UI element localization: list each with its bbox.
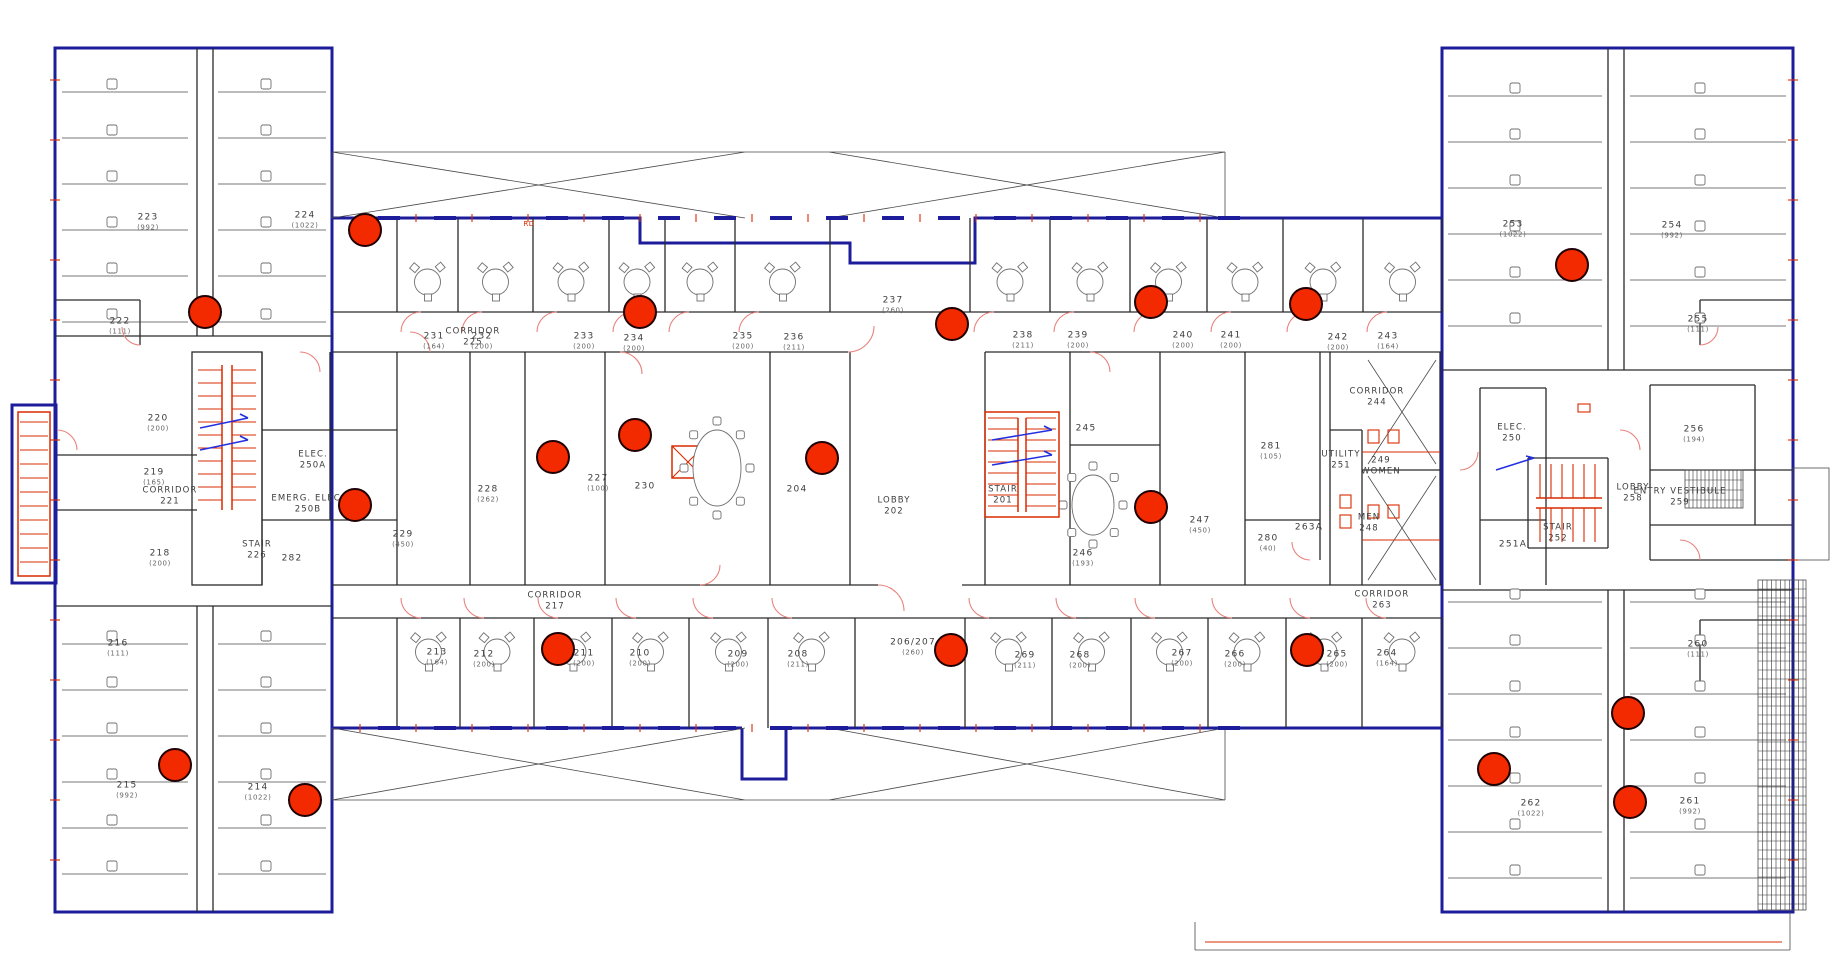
space-number: 248 <box>1358 524 1380 535</box>
room-area: (200) <box>732 342 754 350</box>
room-number: 234 <box>623 333 645 344</box>
room-number: 247 <box>1189 515 1211 526</box>
north-strip-wall <box>332 218 1442 263</box>
room-area: (1022) <box>1518 809 1545 817</box>
space-name: STAIR <box>242 540 272 551</box>
space-number: 250B <box>271 505 344 516</box>
space-number: 221 <box>143 497 198 508</box>
room-label-214: 214(1022) <box>245 782 272 801</box>
room-number: 280 <box>1258 533 1279 544</box>
room-label-241: 241(200) <box>1220 330 1242 349</box>
room-number: 266 <box>1224 649 1246 660</box>
space-label-252: STAIR252 <box>1543 523 1573 546</box>
room-number: 216 <box>107 638 129 649</box>
wing-aisle-walls <box>197 48 1624 912</box>
room-area: (1022) <box>292 221 319 229</box>
room-label-219: 219(165) <box>143 467 165 486</box>
room-number: 219 <box>143 467 165 478</box>
room-number: 243 <box>1377 331 1399 342</box>
room-number: 214 <box>245 782 272 793</box>
room-number: 254 <box>1661 220 1683 231</box>
room-area: (992) <box>137 223 159 231</box>
room-label-220: 220(200) <box>147 413 169 432</box>
canopy-outline <box>1195 912 1790 950</box>
marker-dot[interactable] <box>536 440 570 474</box>
room-label-269: 269(211) <box>1014 650 1036 669</box>
room-number: 239 <box>1067 330 1089 341</box>
space-label-250a: ELEC.250A <box>298 450 328 473</box>
room-number: 264 <box>1376 648 1398 659</box>
room-label-240: 240(200) <box>1172 330 1194 349</box>
room-number: 204 <box>787 485 808 496</box>
space-number: 252 <box>1543 534 1573 545</box>
marker-dot[interactable] <box>1613 785 1647 819</box>
space-number: 226 <box>242 551 272 562</box>
room-number: 246 <box>1072 548 1094 559</box>
room-label-210: 210(200) <box>629 648 651 667</box>
room-label-266: 266(200) <box>1224 649 1246 668</box>
room-area: (200) <box>1067 341 1089 349</box>
room-label-209: 209(200) <box>727 649 749 668</box>
room-area: (193) <box>1072 559 1094 567</box>
room-number: 241 <box>1220 330 1242 341</box>
room-label-236: 236(211) <box>783 332 805 351</box>
marker-dot[interactable] <box>1555 248 1589 282</box>
marker-dot[interactable] <box>188 295 222 329</box>
marker-dot[interactable] <box>1134 490 1168 524</box>
room-label-245: 245 <box>1076 424 1097 435</box>
room-label-242: 242(200) <box>1327 332 1349 351</box>
marker-dot[interactable] <box>623 295 657 329</box>
room-label-253: 253(1022) <box>1500 219 1527 238</box>
marker-dot[interactable] <box>1134 285 1168 319</box>
space-label-201: STAIR201 <box>988 485 1018 508</box>
room-number: 256 <box>1683 424 1705 435</box>
room-area: (200) <box>149 559 171 567</box>
room-area: (211) <box>783 343 805 351</box>
room-label-238: 238(211) <box>1012 330 1034 349</box>
room-number: 255 <box>1687 314 1709 325</box>
room-label-254: 254(992) <box>1661 220 1683 239</box>
room-number: 206/207 <box>890 637 936 648</box>
room-area: (450) <box>1189 526 1211 534</box>
room-area: (200) <box>573 342 595 350</box>
room-area: (200) <box>473 660 495 668</box>
room-area: (1022) <box>245 793 272 801</box>
room-label-218: 218(200) <box>149 548 171 567</box>
space-label-244: CORRIDOR244 <box>1350 387 1405 410</box>
room-number: 265 <box>1326 649 1348 660</box>
room-area: (200) <box>1172 341 1194 349</box>
room-number: 231 <box>423 331 445 342</box>
room-area: (111) <box>109 327 131 335</box>
marker-dot[interactable] <box>618 418 652 452</box>
room-label-251A: 251A <box>1499 540 1527 551</box>
room-number: 215 <box>116 780 138 791</box>
space-label-250: ELEC.250 <box>1497 423 1527 446</box>
marker-dot[interactable] <box>1290 633 1324 667</box>
space-number: 202 <box>877 507 910 518</box>
room-area: (992) <box>1661 231 1683 239</box>
room-label-224: 224(1022) <box>292 210 319 229</box>
room-area: (200) <box>573 659 595 667</box>
room-number: 263A <box>1295 523 1323 534</box>
room-label-263A: 263A <box>1295 523 1323 534</box>
room-area: (200) <box>727 660 749 668</box>
space-number: 250A <box>298 461 328 472</box>
room-label-247: 247(450) <box>1189 515 1211 534</box>
room-number: 210 <box>629 648 651 659</box>
room-area: (260) <box>890 648 936 656</box>
space-name: CORRIDOR <box>528 591 583 602</box>
room-label-208: 208(211) <box>787 649 809 668</box>
room-area: (200) <box>629 659 651 667</box>
floorplan-drawing <box>0 0 1832 961</box>
room-area: (200) <box>1069 661 1091 669</box>
space-name: CORRIDOR <box>1350 387 1405 398</box>
room-area: (164) <box>423 342 445 350</box>
space-name: ENTRY VESTIBULE <box>1633 487 1726 498</box>
room-area: (164) <box>426 658 448 666</box>
space-name: ELEC. <box>298 450 328 461</box>
room-area: (111) <box>1687 650 1709 658</box>
room-area: (105) <box>1260 452 1282 460</box>
room-label-204: 204 <box>787 485 808 496</box>
space-name: ELEC. <box>1497 423 1527 434</box>
marker-dot[interactable] <box>935 307 969 341</box>
space-name: STAIR <box>1543 523 1573 534</box>
marker-dot[interactable] <box>541 632 575 666</box>
room-number: 238 <box>1012 330 1034 341</box>
marker-dot[interactable] <box>934 633 968 667</box>
room-number: 242 <box>1327 332 1349 343</box>
room-label-255: 255(111) <box>1687 314 1709 333</box>
space-label-women: 249WOMEN <box>1361 456 1401 479</box>
room-number: 281 <box>1260 441 1282 452</box>
marker-dot[interactable] <box>1477 752 1511 786</box>
room-label-243: 243(164) <box>1377 331 1399 350</box>
room-label-282: 282 <box>282 554 303 565</box>
room-area: (450) <box>392 540 414 548</box>
room-number: 227 <box>587 473 609 484</box>
room-label-213: 213(164) <box>426 647 448 666</box>
room-label-268: 268(200) <box>1069 650 1091 669</box>
room-label-256: 256(194) <box>1683 424 1705 443</box>
space-label-217: CORRIDOR217 <box>528 591 583 614</box>
space-number: 251 <box>1321 461 1360 472</box>
room-number: 223 <box>137 212 159 223</box>
room-area: (211) <box>1012 341 1034 349</box>
room-area: (200) <box>623 344 645 352</box>
room-label-216: 216(111) <box>107 638 129 657</box>
space-label-250b: EMERG. ELEC.250B <box>271 494 344 517</box>
space-label-225: CORRIDOR225 <box>446 327 501 350</box>
space-name: STAIR <box>988 485 1018 496</box>
room-area: (164) <box>1377 342 1399 350</box>
room-number: 282 <box>282 554 303 565</box>
room-label-280: 280(40) <box>1258 533 1279 552</box>
room-label-267: 267(200) <box>1171 648 1193 667</box>
room-number: 236 <box>783 332 805 343</box>
space-name: 249 <box>1361 456 1401 467</box>
room-number: 240 <box>1172 330 1194 341</box>
room-number: 262 <box>1518 798 1545 809</box>
room-number: 237 <box>882 295 904 306</box>
room-label-246: 246(193) <box>1072 548 1094 567</box>
room-area: (262) <box>477 495 499 503</box>
room-area: (200) <box>1326 660 1348 668</box>
room-label-260: 260(111) <box>1687 639 1709 658</box>
room-label-233: 233(200) <box>573 331 595 350</box>
space-label-263: CORRIDOR263 <box>1355 590 1410 613</box>
room-label-235: 235(200) <box>732 331 754 350</box>
room-number: 229 <box>392 529 414 540</box>
room-number: 211 <box>573 648 595 659</box>
space-label-259: ENTRY VESTIBULE259 <box>1633 487 1726 510</box>
room-area: (200) <box>1171 659 1193 667</box>
space-label-221: CORRIDOR221 <box>143 486 198 509</box>
room-area: (194) <box>1683 435 1705 443</box>
floor-plan-canvas: 223(992)224(1022)222(111)220(200)219(165… <box>0 0 1832 961</box>
space-label-251: UTILITY251 <box>1321 450 1360 473</box>
conference-table-230 <box>693 430 741 506</box>
space-number: WOMEN <box>1361 467 1401 478</box>
marker-dot[interactable] <box>288 783 322 817</box>
room-area: (200) <box>147 424 169 432</box>
room-label-234: 234(200) <box>623 333 645 352</box>
room-number: 261 <box>1679 796 1701 807</box>
space-number: 244 <box>1350 398 1405 409</box>
space-label-202: LOBBY202 <box>877 496 910 519</box>
room-label-265: 265(200) <box>1326 649 1348 668</box>
room-number: 222 <box>109 316 131 327</box>
room-area: (200) <box>1224 660 1246 668</box>
space-name: MEN <box>1358 513 1380 524</box>
space-name: LOBBY <box>877 496 910 507</box>
room-area: (260) <box>882 306 904 314</box>
room-number: 213 <box>426 647 448 658</box>
room-number: 253 <box>1500 219 1527 230</box>
room-number: 228 <box>477 484 499 495</box>
room-label-239: 239(200) <box>1067 330 1089 349</box>
room-number: 268 <box>1069 650 1091 661</box>
marker-dot[interactable] <box>805 441 839 475</box>
room-label-281: 281(105) <box>1260 441 1282 460</box>
room-number: 260 <box>1687 639 1709 650</box>
space-number: 201 <box>988 496 1018 507</box>
space-name: CORRIDOR <box>446 327 501 338</box>
room-number: 251A <box>1499 540 1527 551</box>
marker-dot[interactable] <box>1289 287 1323 321</box>
room-number: 269 <box>1014 650 1036 661</box>
space-name: CORRIDOR <box>1355 590 1410 601</box>
space-label-226: STAIR226 <box>242 540 272 563</box>
left-entry-stair <box>18 412 50 576</box>
room-area: (211) <box>1014 661 1036 669</box>
room-label-264: 264(164) <box>1376 648 1398 667</box>
room-number: 218 <box>149 548 171 559</box>
room-label-206-207: 206/207(260) <box>890 637 936 656</box>
room-label-229: 229(450) <box>392 529 414 548</box>
room-label-237: 237(260) <box>882 295 904 314</box>
wall-box <box>1578 404 1590 412</box>
marker-dot[interactable] <box>1611 696 1645 730</box>
space-number: 250 <box>1497 434 1527 445</box>
room-label-228: 228(262) <box>477 484 499 503</box>
room-label-222: 222(111) <box>109 316 131 335</box>
room-area: (992) <box>116 791 138 799</box>
room-number: 208 <box>787 649 809 660</box>
room-area: (992) <box>1679 807 1701 815</box>
room-area: (100) <box>587 484 609 492</box>
corridor-217-walls <box>332 585 1442 618</box>
room-number: 245 <box>1076 424 1097 435</box>
north-roof-bracing <box>332 152 1225 218</box>
room-area: (200) <box>1327 343 1349 351</box>
left-wing-outline <box>55 48 332 912</box>
conference-table-246 <box>1072 475 1114 535</box>
room-label-215: 215(992) <box>116 780 138 799</box>
room-number: 224 <box>292 210 319 221</box>
room-area: (211) <box>787 660 809 668</box>
room-number: 209 <box>727 649 749 660</box>
room-area: (164) <box>1376 659 1398 667</box>
space-number: 259 <box>1633 498 1726 509</box>
roof-drain-annotation: RD <box>523 220 534 228</box>
room-label-211: 211(200) <box>573 648 595 667</box>
space-name: CORRIDOR <box>143 486 198 497</box>
marker-dot[interactable] <box>348 213 382 247</box>
room-number: 235 <box>732 331 754 342</box>
marker-dot[interactable] <box>338 488 372 522</box>
space-number: 217 <box>528 602 583 613</box>
room-number: 220 <box>147 413 169 424</box>
room-number: 230 <box>635 482 656 493</box>
room-area: (40) <box>1258 544 1279 552</box>
room-area: (111) <box>107 649 129 657</box>
room-area: (1022) <box>1500 230 1527 238</box>
room-number: 212 <box>473 649 495 660</box>
space-label-248: MEN248 <box>1358 513 1380 536</box>
room-label-262: 262(1022) <box>1518 798 1545 817</box>
room-area: (200) <box>1220 341 1242 349</box>
space-name: UTILITY <box>1321 450 1360 461</box>
room-label-212: 212(200) <box>473 649 495 668</box>
room-number: 267 <box>1171 648 1193 659</box>
room-label-227: 227(100) <box>587 473 609 492</box>
room-label-223: 223(992) <box>137 212 159 231</box>
room-label-261: 261(992) <box>1679 796 1701 815</box>
room-label-231: 231(164) <box>423 331 445 350</box>
space-number: 263 <box>1355 601 1410 612</box>
south-roof-bracing <box>332 728 1225 800</box>
room-number: 233 <box>573 331 595 342</box>
room-area: (111) <box>1687 325 1709 333</box>
room-label-230: 230 <box>635 482 656 493</box>
space-number: 225 <box>446 338 501 349</box>
space-name: EMERG. ELEC. <box>271 494 344 505</box>
marker-dot[interactable] <box>158 748 192 782</box>
right-entry-outline <box>1793 468 1829 560</box>
